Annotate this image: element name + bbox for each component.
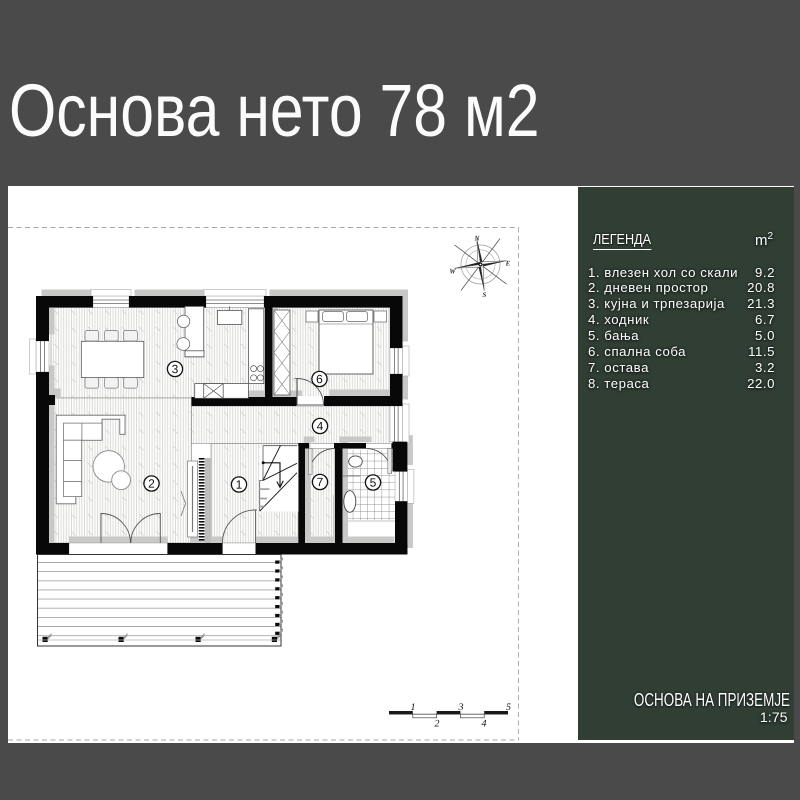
svg-text:7: 7 — [317, 475, 324, 489]
svg-text:5: 5 — [506, 702, 511, 713]
svg-text:2: 2 — [434, 718, 439, 729]
svg-text:1: 1 — [236, 478, 243, 492]
svg-text:W: W — [449, 267, 456, 275]
svg-text:N: N — [473, 234, 480, 242]
svg-text:3: 3 — [172, 362, 179, 376]
svg-text:1: 1 — [410, 702, 415, 713]
svg-text:6: 6 — [316, 372, 323, 386]
svg-text:3: 3 — [457, 702, 463, 713]
svg-text:E: E — [505, 259, 511, 267]
svg-text:S: S — [483, 291, 487, 299]
svg-text:4: 4 — [317, 419, 324, 433]
svg-text:4: 4 — [481, 718, 486, 729]
svg-text:5: 5 — [370, 476, 377, 490]
svg-text:2: 2 — [148, 477, 155, 491]
